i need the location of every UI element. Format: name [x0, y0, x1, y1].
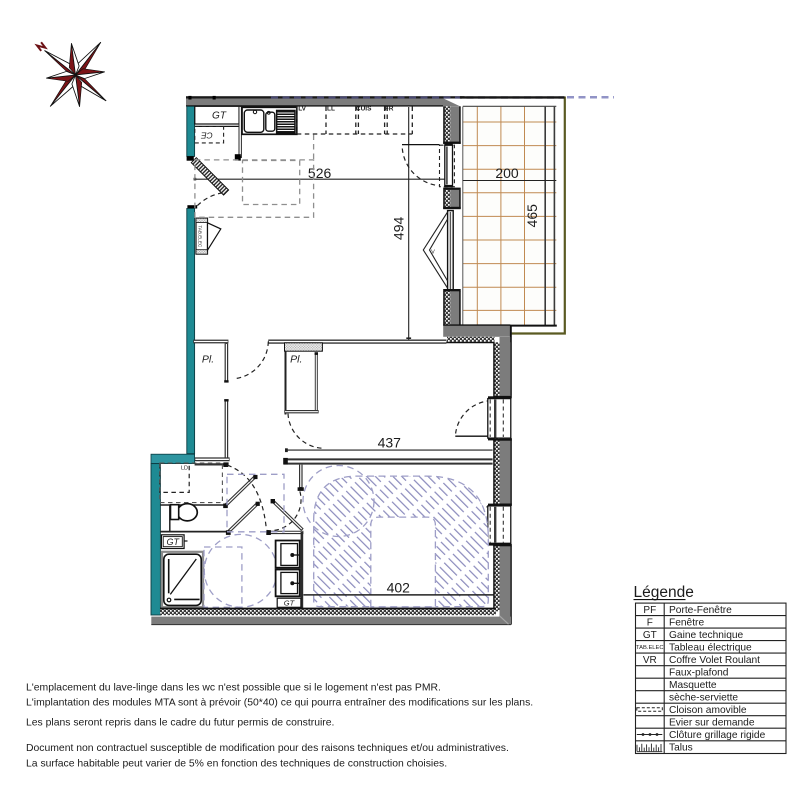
svg-text:CE: CE [201, 131, 213, 141]
svg-text:LL: LL [327, 106, 335, 113]
svg-text:402: 402 [387, 579, 411, 595]
svg-text:Talus: Talus [669, 743, 693, 754]
svg-text:Gaine technique: Gaine technique [669, 630, 744, 641]
svg-text:LD: LD [181, 465, 188, 471]
svg-text:L'emplacement du lave-linge da: L'emplacement du lave-linge dans les wc … [26, 682, 441, 693]
svg-text:Faux-plafond: Faux-plafond [669, 668, 729, 679]
svg-text:Cloison amovible: Cloison amovible [669, 705, 747, 716]
svg-text:Légende: Légende [634, 584, 694, 601]
svg-text:437: 437 [378, 435, 402, 451]
svg-text:GT: GT [643, 630, 657, 641]
svg-text:VR: VR [643, 655, 657, 666]
svg-text:PF: PF [643, 605, 656, 616]
svg-text:GT: GT [212, 111, 227, 122]
svg-text:LV: LV [298, 106, 306, 113]
svg-text:La surface habitable peut vari: La surface habitable peut varier de 5% e… [26, 759, 447, 770]
svg-text:Document non contractuel susce: Document non contractuel susceptible de … [26, 743, 509, 754]
svg-text:Fenêtre: Fenêtre [669, 617, 704, 628]
svg-text:sèche-serviette: sèche-serviette [669, 693, 738, 704]
svg-text:Tableau électrique: Tableau électrique [669, 642, 752, 653]
svg-text:Clôture grillage rigide: Clôture grillage rigide [669, 730, 766, 741]
svg-text:F: F [647, 617, 653, 628]
svg-text:494: 494 [391, 217, 407, 241]
svg-text:V: V [431, 250, 435, 256]
svg-text:Evier sur demande: Evier sur demande [669, 718, 755, 729]
svg-text:TAB.ELEC: TAB.ELEC [198, 225, 203, 248]
svg-text:Pl.: Pl. [202, 354, 214, 366]
svg-text:TAB.ELEC: TAB.ELEC [636, 645, 664, 651]
svg-text:526: 526 [308, 165, 332, 181]
svg-text:Pl.: Pl. [290, 354, 302, 366]
svg-text:L'implantation des modules MTA: L'implantation des modules MTA sont à pr… [26, 697, 533, 708]
svg-text:200: 200 [495, 165, 519, 181]
svg-text:Les plans seront repris dans l: Les plans seront repris dans le cadre du… [26, 717, 334, 728]
svg-text:CUIS: CUIS [356, 106, 372, 113]
svg-text:GT: GT [166, 537, 180, 547]
svg-text:465: 465 [524, 204, 540, 228]
svg-text:FR: FR [385, 106, 394, 113]
svg-text:Coffre Volet Roulant: Coffre Volet Roulant [669, 655, 760, 666]
svg-text:GT: GT [284, 599, 296, 608]
svg-text:Masquette: Masquette [669, 680, 717, 691]
svg-text:Porte-Fenêtre: Porte-Fenêtre [669, 605, 732, 616]
